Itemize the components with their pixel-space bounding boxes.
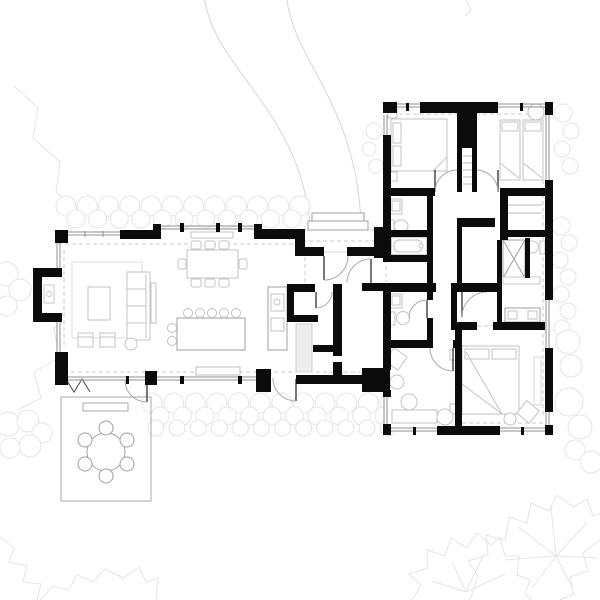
interior-wall xyxy=(453,340,462,348)
window-pier xyxy=(216,223,220,232)
interior-wall xyxy=(497,283,502,323)
tree-canopy xyxy=(468,495,600,600)
shrub xyxy=(554,104,572,122)
shrub xyxy=(560,303,576,319)
coffee-table xyxy=(88,287,110,320)
tree-canopy xyxy=(0,537,41,600)
pillow xyxy=(502,122,518,131)
fireplace-flue xyxy=(47,292,52,297)
hedge-row xyxy=(211,420,227,436)
dining-chair xyxy=(191,279,201,287)
exterior-wall xyxy=(256,369,271,392)
hedge-row xyxy=(232,420,248,436)
bar-stool xyxy=(208,309,217,318)
dining-chair xyxy=(219,241,229,249)
exterior-wall xyxy=(347,247,377,256)
stool xyxy=(504,413,516,425)
interior-wall xyxy=(497,240,502,283)
driveway-path xyxy=(205,0,310,225)
tree-canopy xyxy=(560,540,600,600)
armchair xyxy=(78,333,93,347)
toilet-tank xyxy=(540,241,545,254)
shrub xyxy=(366,123,382,139)
floor-plan-canvas xyxy=(0,0,600,600)
dining-chair xyxy=(178,259,186,269)
hedge-row xyxy=(148,420,164,436)
window-pier xyxy=(180,223,184,232)
hedge-row xyxy=(253,420,269,436)
sink-drain xyxy=(274,299,280,305)
outdoor-chair xyxy=(99,469,113,483)
bar-stool xyxy=(196,309,205,318)
hedge-row xyxy=(67,210,85,228)
hedge-row xyxy=(296,420,312,436)
plant xyxy=(437,409,453,425)
outdoor-table xyxy=(87,433,125,471)
shrub xyxy=(362,142,376,156)
entry-bench-seat xyxy=(308,221,368,230)
interior-wall xyxy=(391,255,433,262)
dining-chair xyxy=(191,241,201,249)
exterior-wall xyxy=(545,348,553,412)
hedge-row xyxy=(317,420,333,436)
desk-chair xyxy=(401,394,417,410)
bath-sink-basin xyxy=(392,296,400,305)
dining-chair xyxy=(239,259,247,269)
bar-stool xyxy=(168,337,177,346)
hedge-row xyxy=(261,210,279,228)
hedge-row xyxy=(197,210,215,228)
shrub xyxy=(563,123,579,139)
exterior-wall xyxy=(362,368,390,392)
bar-stool xyxy=(220,309,229,318)
shrub xyxy=(552,252,568,268)
shrub xyxy=(560,269,576,285)
shrub xyxy=(553,286,569,302)
bar-stool xyxy=(168,324,177,333)
window-pier xyxy=(238,223,242,232)
exterior-wall xyxy=(383,390,391,397)
exterior-wall xyxy=(153,224,161,239)
window-pier xyxy=(413,427,416,435)
hedge-row xyxy=(275,420,291,436)
bathtub-inner xyxy=(394,240,422,252)
tree-canopy xyxy=(40,567,158,600)
shrub xyxy=(0,438,20,458)
outdoor-chair xyxy=(120,433,134,447)
interior-wall xyxy=(502,230,545,237)
hedge-row xyxy=(89,210,107,228)
interior-wall xyxy=(455,322,477,330)
tub-drain xyxy=(419,244,423,248)
deck-step xyxy=(83,403,128,411)
closet-wall xyxy=(457,148,462,192)
exterior-wall xyxy=(545,425,553,435)
dining-chair xyxy=(205,241,215,249)
pillow xyxy=(525,122,541,131)
kitchen-island xyxy=(177,318,245,350)
shrub xyxy=(19,435,41,457)
driveway-path xyxy=(287,0,361,222)
hedge-row xyxy=(359,420,375,436)
vanity-basin xyxy=(528,311,537,319)
shrub xyxy=(560,355,582,377)
hedge-row xyxy=(132,210,150,228)
shelf xyxy=(503,277,540,284)
window-pier xyxy=(126,376,129,384)
closet-wall xyxy=(457,108,477,148)
interior-wall xyxy=(391,340,427,348)
shrub xyxy=(562,158,578,174)
interior-wall xyxy=(457,283,502,292)
exterior-wall xyxy=(383,424,391,435)
pillow xyxy=(393,123,401,143)
pantry-cabinet xyxy=(296,324,312,372)
exterior-wall xyxy=(120,230,158,239)
side-table xyxy=(125,338,137,350)
fireplace-box xyxy=(44,285,54,303)
hedge-row xyxy=(190,420,206,436)
interior-wall xyxy=(493,322,545,330)
interior-wall xyxy=(427,292,433,300)
dining-chair xyxy=(205,279,215,287)
outdoor-chair xyxy=(78,457,92,471)
interior-wall xyxy=(333,362,342,378)
dining-table xyxy=(187,250,238,278)
interior-wall xyxy=(427,230,433,292)
outdoor-chair xyxy=(78,433,92,447)
console-table xyxy=(151,283,156,323)
hedge-row xyxy=(169,420,185,436)
entry-bench-back xyxy=(312,213,364,221)
plant xyxy=(528,104,544,120)
tree-canopy xyxy=(465,0,471,16)
toilet-bowl xyxy=(397,312,410,325)
floor-plan-page xyxy=(0,0,600,600)
shrub xyxy=(555,388,583,416)
exterior-wall xyxy=(383,230,391,262)
window-seat xyxy=(196,367,240,375)
hedge-row xyxy=(218,210,236,228)
dining-chair xyxy=(219,279,229,287)
hedge-row xyxy=(110,210,128,228)
exterior-wall xyxy=(545,180,553,300)
shrub xyxy=(552,217,570,235)
tree-branches xyxy=(505,507,598,589)
shrub xyxy=(561,235,577,251)
interior-wall xyxy=(525,238,530,278)
pillow xyxy=(465,349,489,359)
window-pier xyxy=(180,376,184,384)
interior-wall xyxy=(383,188,435,196)
shrub xyxy=(369,159,383,173)
vanity-basin xyxy=(508,311,517,319)
window-pier xyxy=(520,103,523,111)
exterior-wall xyxy=(145,371,157,385)
exterior-wall xyxy=(296,375,364,384)
shrub xyxy=(556,330,580,354)
pillow xyxy=(492,349,516,359)
shrub xyxy=(0,296,17,316)
interior-wall xyxy=(287,315,318,322)
cooktop xyxy=(271,318,284,331)
shrub xyxy=(568,415,592,439)
bar-stool xyxy=(184,309,193,318)
exterior-wall xyxy=(545,102,553,115)
interior-wall xyxy=(391,283,436,292)
hedge-row xyxy=(338,420,354,436)
exterior-wall xyxy=(55,352,68,385)
window-pier xyxy=(521,427,524,435)
stool xyxy=(390,375,404,389)
pillow xyxy=(393,146,401,166)
hedge-row xyxy=(283,210,301,228)
shrub xyxy=(554,141,570,157)
exterior-wall xyxy=(55,230,68,243)
exterior-wall xyxy=(305,247,324,256)
sideboard xyxy=(191,232,233,238)
interior-wall xyxy=(457,227,462,283)
outdoor-chair xyxy=(99,421,113,435)
exterior-wall xyxy=(383,135,391,230)
exterior-wall xyxy=(437,426,500,435)
shrub xyxy=(580,451,600,473)
exterior-wall xyxy=(383,102,397,113)
window-pier xyxy=(238,376,242,384)
wc-sink-basin xyxy=(392,201,400,211)
exterior-wall xyxy=(383,283,391,370)
bar-stool xyxy=(232,309,241,318)
outdoor-chair xyxy=(120,457,134,471)
desk xyxy=(392,410,437,423)
interior-wall xyxy=(457,218,495,227)
interior-wall xyxy=(391,230,427,237)
bench xyxy=(534,357,541,405)
closet-wall xyxy=(472,148,477,192)
interior-wall xyxy=(427,318,433,348)
exterior-wall xyxy=(295,229,305,256)
window-pier xyxy=(406,103,409,111)
armchair xyxy=(100,333,115,347)
interior-wall xyxy=(313,345,342,352)
